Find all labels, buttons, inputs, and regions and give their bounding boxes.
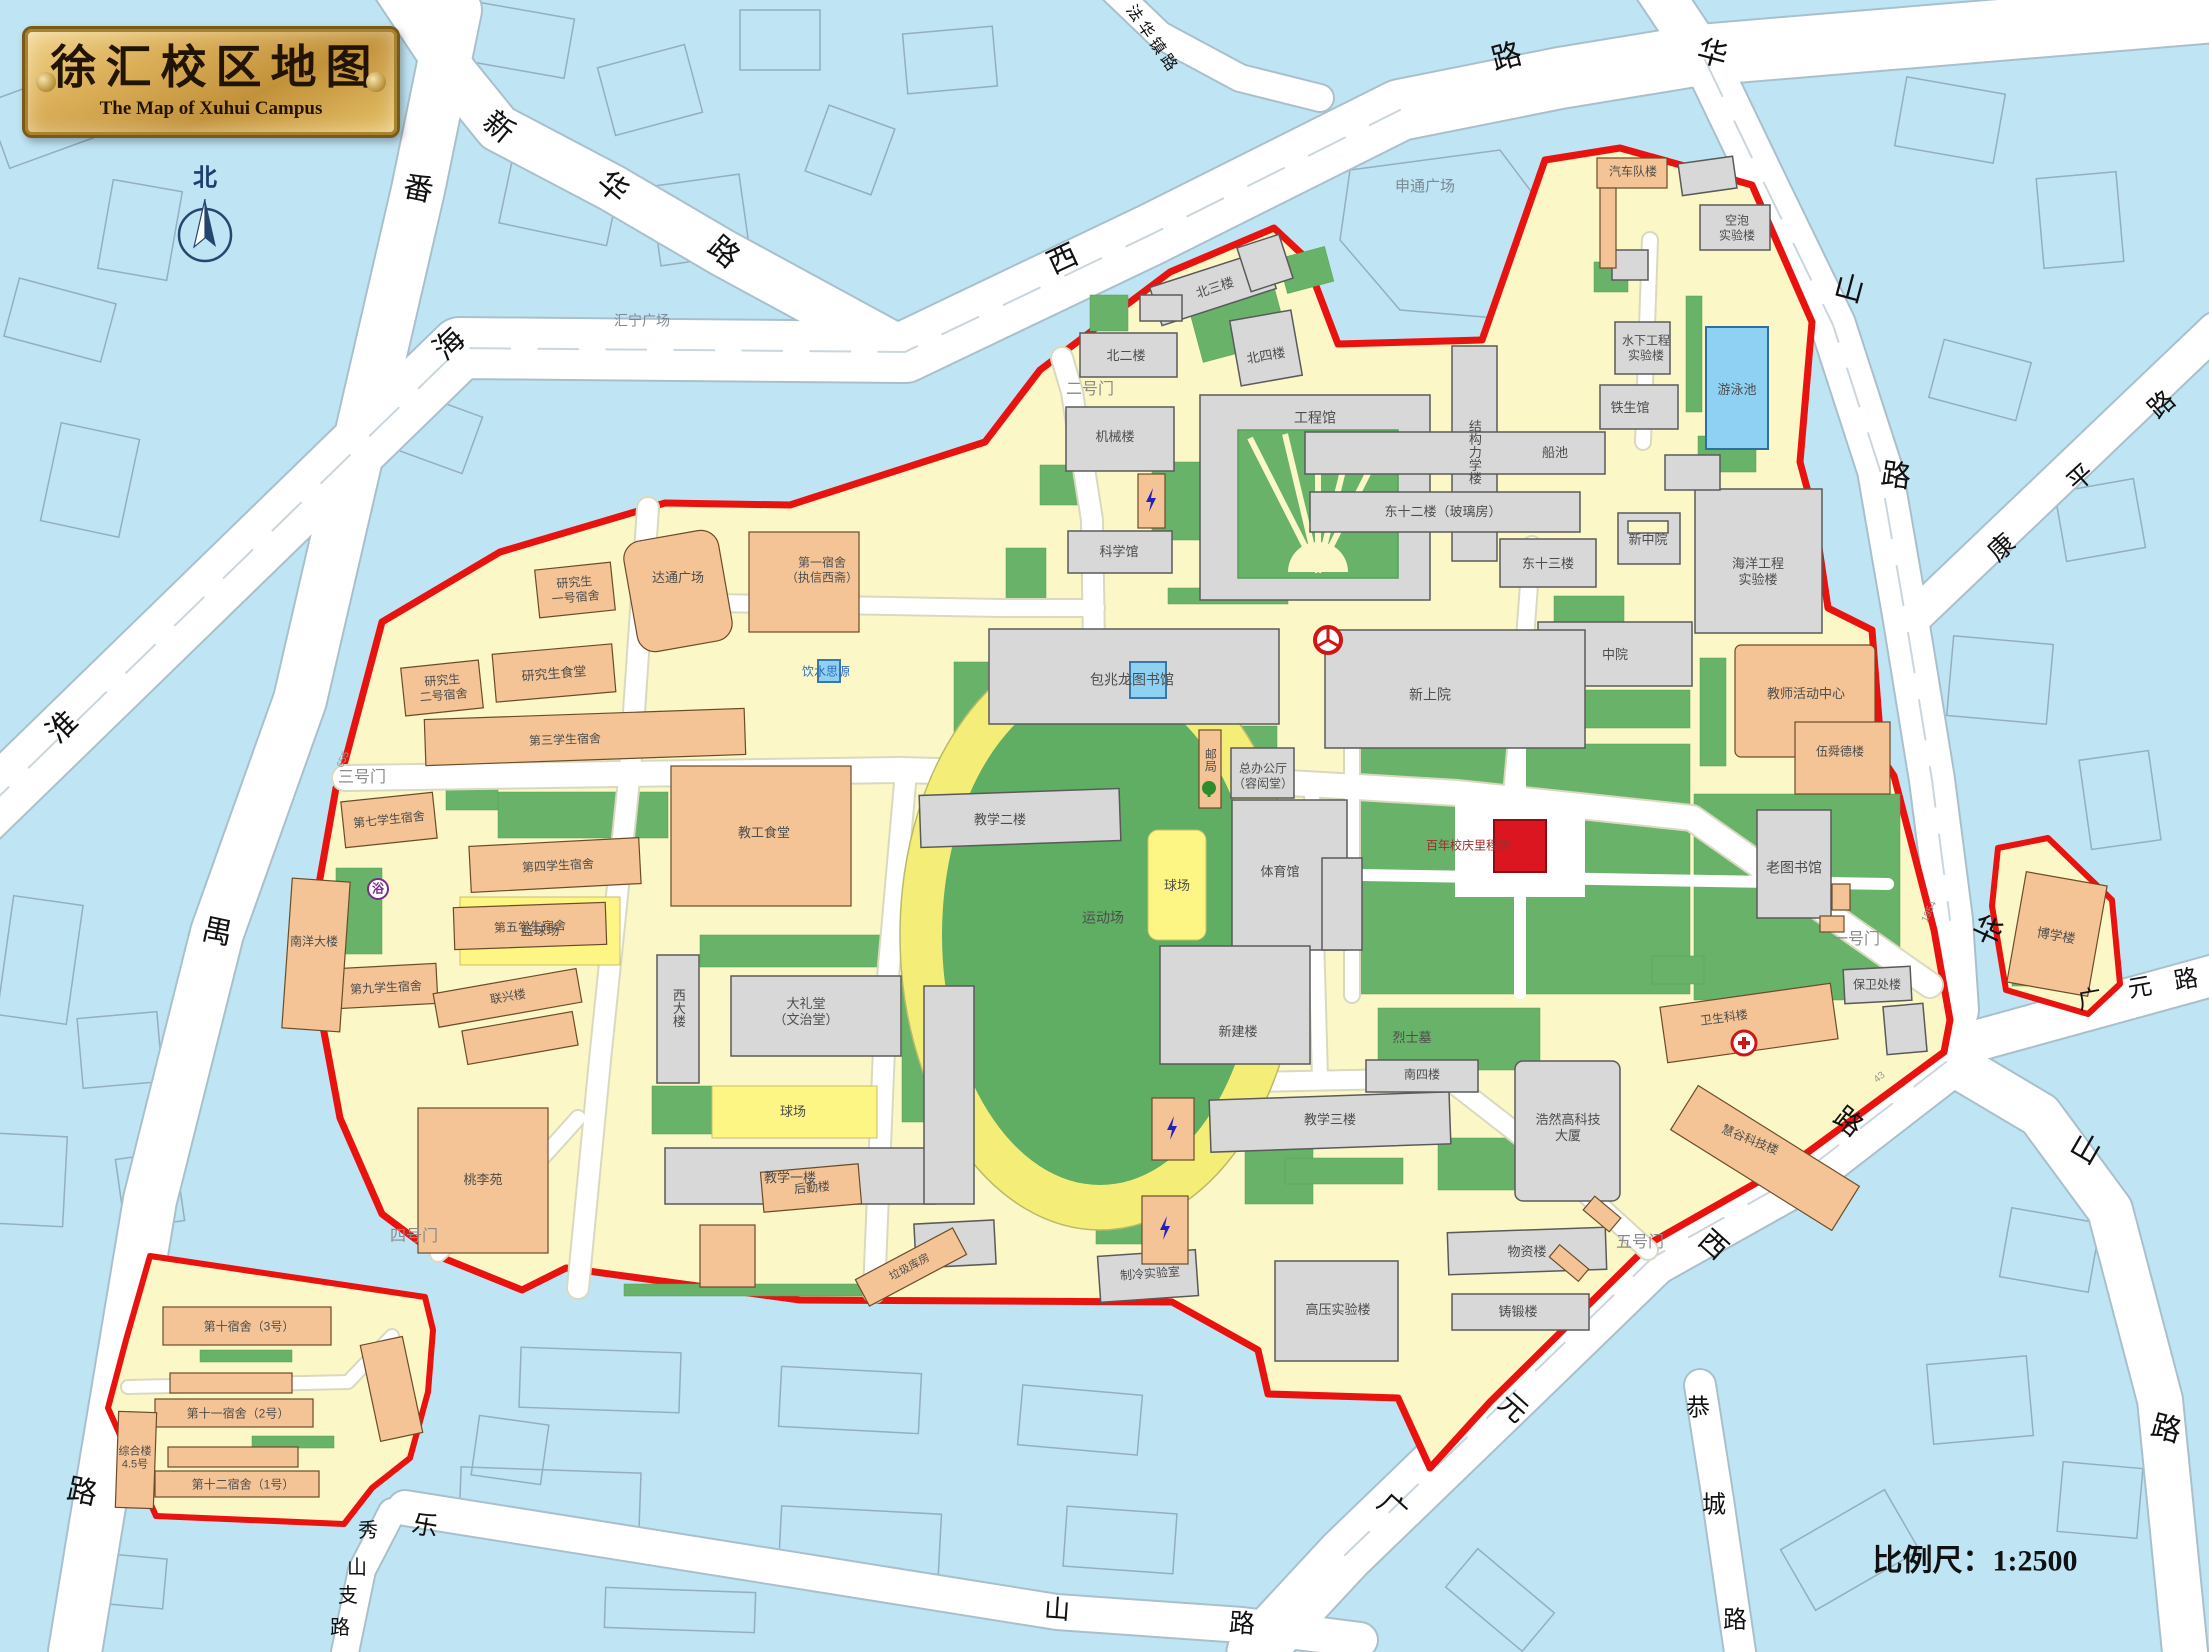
building-dong12lou (1310, 492, 1580, 532)
centennial-monument (1494, 820, 1546, 872)
building-zonghelou (115, 1411, 156, 1508)
building-xinshangyuan (1325, 630, 1585, 748)
building-shuixia-lab (1615, 322, 1670, 374)
building-datong-plaza (621, 528, 735, 655)
building-xinjianlou (1160, 946, 1310, 1064)
building-haiyang-lab (1695, 489, 1822, 633)
building-zongbangongting (1231, 748, 1294, 798)
building-dong13lou (1500, 539, 1596, 587)
title-plaque: 徐汇校区地图 The Map of Xuhui Campus (22, 26, 400, 138)
building-dorm5 (453, 902, 606, 949)
building-dorm9 (336, 963, 438, 1008)
map-title-en: The Map of Xuhui Campus (100, 98, 323, 120)
library-pond (1130, 662, 1166, 698)
map-canvas (0, 0, 2209, 1652)
building-beierlou (1080, 333, 1177, 377)
building-dorm10 (163, 1307, 331, 1345)
building-qichedui (1597, 158, 1667, 188)
building-jixielou (1066, 407, 1174, 471)
building-nansilou (1366, 1060, 1478, 1092)
plaque-bolt-left (36, 72, 56, 92)
building-gaoya-lab (1275, 1261, 1398, 1361)
building-dorm4 (469, 838, 641, 893)
building-jiaoxue3 (1209, 1092, 1451, 1152)
building-jiaogong-canteen (671, 766, 851, 906)
building-chuanchi (1305, 432, 1605, 474)
building-taoliyuan (418, 1108, 548, 1253)
court-1 (1148, 830, 1206, 940)
building-wushundelou (1795, 722, 1890, 794)
medical-cross-icon (1732, 1031, 1756, 1055)
building-beisilou (1230, 310, 1303, 386)
building-jiaoxue2 (919, 789, 1121, 848)
building-houqinlou (760, 1164, 861, 1212)
building-xidalou (657, 955, 699, 1083)
building-kexueguan (1068, 531, 1172, 573)
map-title-zh: 徐汇校区地图 (42, 45, 381, 91)
parking-wheel-icon (1315, 627, 1341, 653)
building-dorm7 (341, 792, 437, 847)
building-kongpao-lab (1700, 205, 1770, 250)
bath-icon (368, 879, 388, 899)
building-haoran-tower (1515, 1061, 1620, 1201)
building-zhuduanlou (1452, 1294, 1589, 1330)
building-yjs1-dorm (535, 562, 616, 618)
building-dorm11 (155, 1399, 313, 1427)
building-old-library (1757, 810, 1831, 918)
building-tieshengguan (1600, 385, 1678, 429)
building-yjs-canteen (492, 644, 616, 702)
yinshuisiyuan-monument (818, 660, 840, 682)
court-2 (712, 1086, 877, 1138)
building-yjs2-dorm (401, 660, 484, 716)
plaque-bolt-right (366, 72, 386, 92)
campus-map: 北比例尺：1:2500番禺路新华路淮海西路法华镇路华山路华山路康平路广元路广元西… (0, 0, 2209, 1652)
building-dorm1 (749, 532, 859, 632)
swimming-pool (1706, 327, 1768, 449)
building-baoweichulou (1843, 966, 1912, 1003)
building-auditorium (731, 976, 901, 1056)
building-nanyangdalou (282, 878, 350, 1032)
building-dorm12 (155, 1471, 319, 1497)
